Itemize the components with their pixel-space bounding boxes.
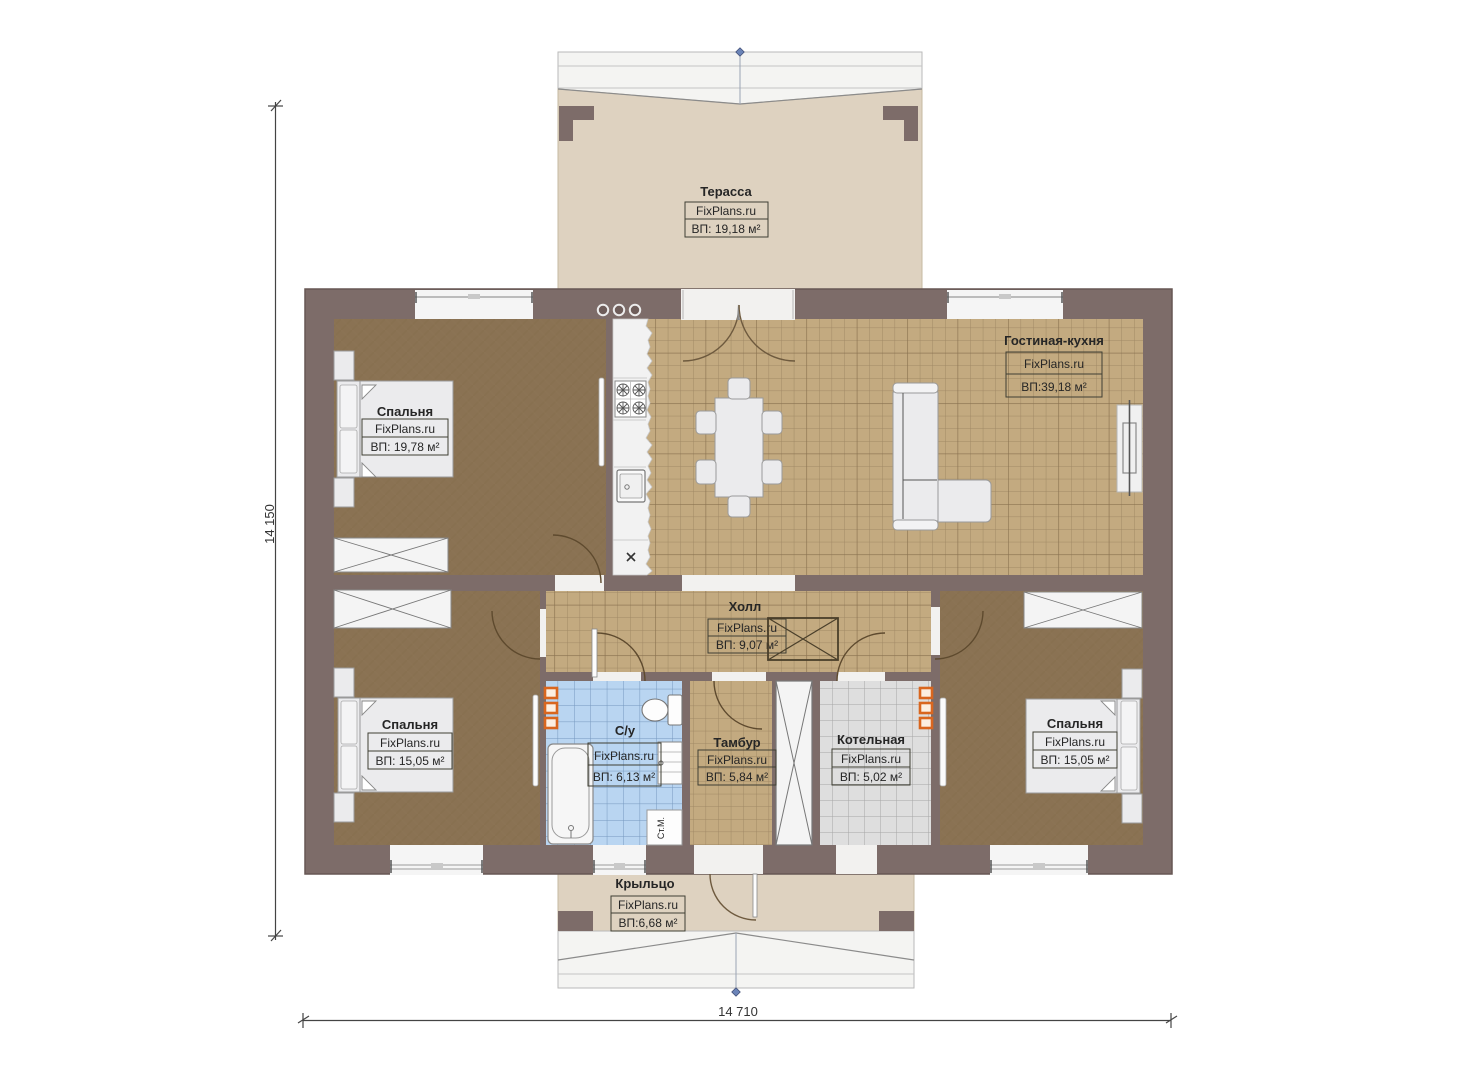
- svg-text:14 710: 14 710: [718, 1004, 758, 1019]
- svg-text:ВП:39,18 м²: ВП:39,18 м²: [1021, 380, 1087, 394]
- svg-text:ВП: 19,18 м²: ВП: 19,18 м²: [692, 222, 761, 236]
- svg-text:FixPlans.ru: FixPlans.ru: [375, 422, 435, 436]
- svg-text:ВП: 5,02 м²: ВП: 5,02 м²: [840, 770, 902, 784]
- svg-text:Терасса: Терасса: [700, 184, 752, 199]
- svg-text:ВП: 5,84 м²: ВП: 5,84 м²: [706, 770, 768, 784]
- svg-text:Котельная: Котельная: [837, 732, 905, 747]
- svg-text:ВП: 15,05 м²: ВП: 15,05 м²: [1041, 753, 1110, 767]
- svg-text:FixPlans.ru: FixPlans.ru: [594, 749, 654, 763]
- svg-text:ВП: 19,78 м²: ВП: 19,78 м²: [371, 440, 440, 454]
- svg-text:Ст.М.: Ст.М.: [656, 817, 666, 839]
- svg-text:Спальня: Спальня: [1047, 716, 1103, 731]
- svg-text:ВП:6,68 м²: ВП:6,68 м²: [619, 916, 678, 930]
- svg-text:FixPlans.ru: FixPlans.ru: [1045, 735, 1105, 749]
- svg-text:FixPlans.ru: FixPlans.ru: [696, 204, 756, 218]
- svg-text:ВП: 15,05 м²: ВП: 15,05 м²: [376, 754, 445, 768]
- svg-text:FixPlans.ru: FixPlans.ru: [380, 736, 440, 750]
- svg-text:FixPlans.ru: FixPlans.ru: [707, 753, 767, 767]
- svg-text:FixPlans.ru: FixPlans.ru: [841, 752, 901, 766]
- svg-text:С/у: С/у: [615, 723, 636, 738]
- svg-text:Спальня: Спальня: [382, 717, 438, 732]
- svg-text:FixPlans.ru: FixPlans.ru: [1024, 357, 1084, 371]
- svg-text:Тамбур: Тамбур: [713, 735, 760, 750]
- svg-text:Спальня: Спальня: [377, 404, 433, 419]
- svg-text:14 150: 14 150: [262, 504, 277, 544]
- svg-text:Крыльцо: Крыльцо: [615, 876, 674, 891]
- svg-text:Гостиная-кухня: Гостиная-кухня: [1004, 333, 1104, 348]
- svg-text:Холл: Холл: [729, 599, 762, 614]
- svg-text:ВП: 6,13 м²: ВП: 6,13 м²: [593, 770, 655, 784]
- svg-text:FixPlans.ru: FixPlans.ru: [618, 898, 678, 912]
